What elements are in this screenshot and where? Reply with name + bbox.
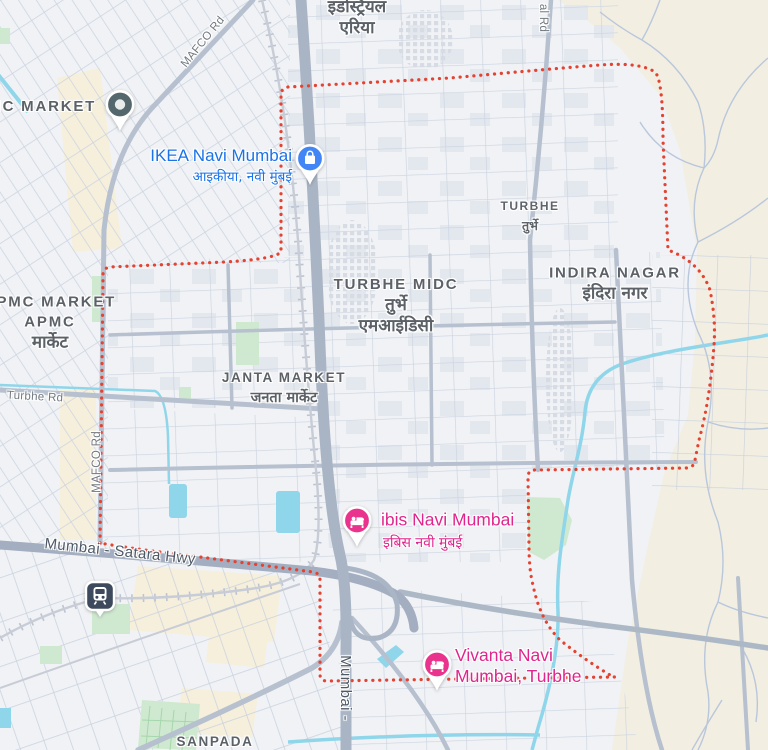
label-mafco-rd-vertical-text: MAFCO Rd <box>87 431 107 493</box>
label-apmc-market-top: APMC MARKET <box>0 97 96 117</box>
label-apmc-market-top-text: APMC MARKET <box>0 97 96 117</box>
marker-apmc-place-pin[interactable] <box>102 89 138 138</box>
transit-badge-icon <box>83 579 117 619</box>
label-apmc-market-text: मार्केट <box>0 333 116 354</box>
label-vivanta-text: Mumbai, Turbhe <box>455 666 581 687</box>
label-ibis-title-text: ibis Navi Mumbai <box>381 510 514 531</box>
label-apmc-market-text: APMC <box>0 313 116 333</box>
map-canvas[interactable]: इंडस्ट्रियलएरियाAPMC MARKETIKEA Navi Mum… <box>0 0 768 750</box>
label-vivanta-text: Vivanta Navi <box>455 645 581 666</box>
label-ibis-subtitle-text: इबिस नवी मुंबई <box>383 533 462 553</box>
shopping-pin-icon <box>292 143 328 187</box>
label-turbhe-rd: Turbhe Rd <box>6 386 64 409</box>
label-apmc-market-text: APMC MARKET <box>0 293 116 313</box>
label-ikea-title[interactable]: IKEA Navi Mumbai <box>150 146 292 166</box>
label-indira-nagar: INDIRA NAGARइंदिरा नगर <box>549 264 681 305</box>
marker-vivanta-hotel-pin[interactable] <box>419 649 455 698</box>
label-mumbai-vertical-text: Mumbai - <box>335 655 355 721</box>
label-indira-nagar-text: INDIRA NAGAR <box>549 264 681 284</box>
label-sanpada-text: SANPADA <box>177 732 254 750</box>
place-pin-icon <box>102 89 138 133</box>
hotel-pin-icon <box>339 505 375 549</box>
label-ibis-title[interactable]: ibis Navi Mumbai <box>381 510 514 531</box>
label-turbhe-midc: TURBHE MIDCतुर्भेएमआईडिसी <box>334 275 459 337</box>
label-turbhe-locality-text: तुर्भे <box>501 216 560 236</box>
label-turbhe-midc-text: तुर्भे <box>334 295 459 316</box>
marker-ibis-hotel-pin[interactable] <box>339 505 375 554</box>
label-turbhe-midc-text: एमआईडिसी <box>334 316 459 337</box>
label-industrial-area: इंडस्ट्रियलएरिया <box>328 0 386 39</box>
label-janta-market-text: JANTA MARKET <box>222 368 346 388</box>
label-ikea-subtitle-text: आइकीया, नवी मुंबई <box>193 167 292 187</box>
label-turbhe-rd-text: Turbhe Rd <box>6 386 64 409</box>
label-sanpada: SANPADA <box>177 732 254 750</box>
marker-ikea-shopping-pin[interactable] <box>292 143 328 192</box>
label-janta-market: JANTA MARKETजनता मार्केट <box>222 368 346 408</box>
label-mumbai-vertical: Mumbai - <box>335 655 355 721</box>
label-turbhe-locality-text: TURBHE <box>501 196 560 216</box>
label-industrial-area-text: एरिया <box>328 18 386 39</box>
label-ikea-title-text: IKEA Navi Mumbai <box>150 146 292 166</box>
label-mafco-rd-vertical: MAFCO Rd <box>87 431 107 493</box>
label-turbhe-locality: TURBHEतुर्भे <box>501 196 560 236</box>
label-al-rd-text: al Rd <box>533 4 553 32</box>
label-ibis-subtitle[interactable]: इबिस नवी मुंबई <box>383 533 462 553</box>
label-vivanta[interactable]: Vivanta NaviMumbai, Turbhe <box>455 645 581 687</box>
label-al-rd: al Rd <box>533 4 553 32</box>
label-indira-nagar-text: इंदिरा नगर <box>549 284 681 305</box>
label-ikea-subtitle[interactable]: आइकीया, नवी मुंबई <box>193 167 292 187</box>
label-apmc-market: APMC MARKETAPMCमार्केट <box>0 293 116 354</box>
marker-turbhe-station[interactable] <box>83 579 117 624</box>
hotel-pin-icon <box>419 649 455 693</box>
label-janta-market-text: जनता मार्केट <box>222 388 346 408</box>
label-turbhe-midc-text: TURBHE MIDC <box>334 275 459 295</box>
label-industrial-area-text: इंडस्ट्रियल <box>328 0 386 18</box>
